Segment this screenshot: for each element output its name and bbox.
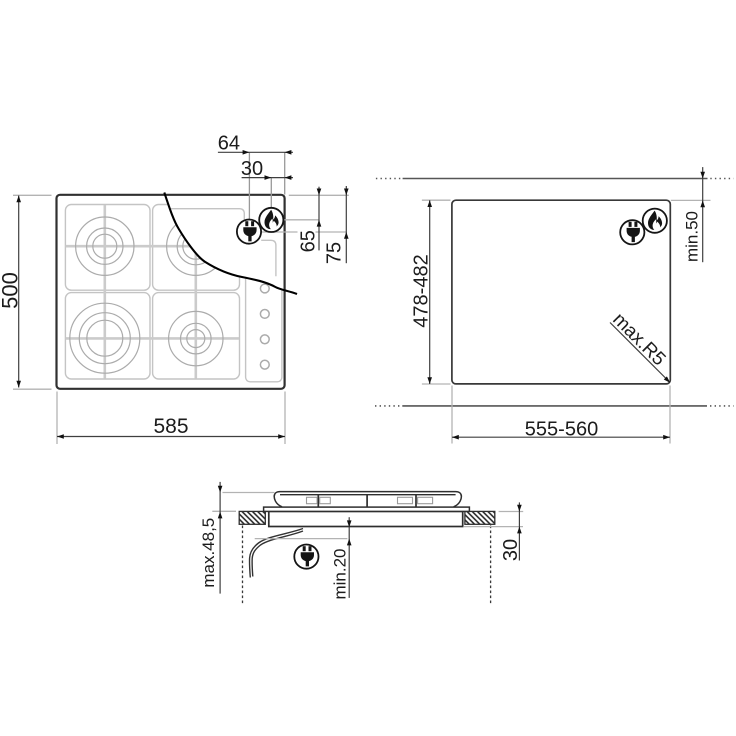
svg-text:478-482: 478-482 — [411, 254, 433, 327]
svg-text:max.R5: max.R5 — [608, 309, 669, 370]
svg-text:75: 75 — [324, 242, 346, 264]
svg-text:585: 585 — [153, 415, 188, 438]
svg-text:max.48,5: max.48,5 — [199, 518, 218, 588]
svg-text:65: 65 — [298, 230, 320, 252]
svg-text:64: 64 — [218, 133, 240, 155]
svg-text:30: 30 — [241, 158, 263, 180]
svg-text:min.50: min.50 — [683, 211, 702, 262]
svg-text:min.20: min.20 — [331, 548, 350, 599]
svg-text:30: 30 — [500, 539, 522, 561]
svg-text:555-560: 555-560 — [525, 419, 598, 441]
svg-text:500: 500 — [0, 272, 23, 309]
